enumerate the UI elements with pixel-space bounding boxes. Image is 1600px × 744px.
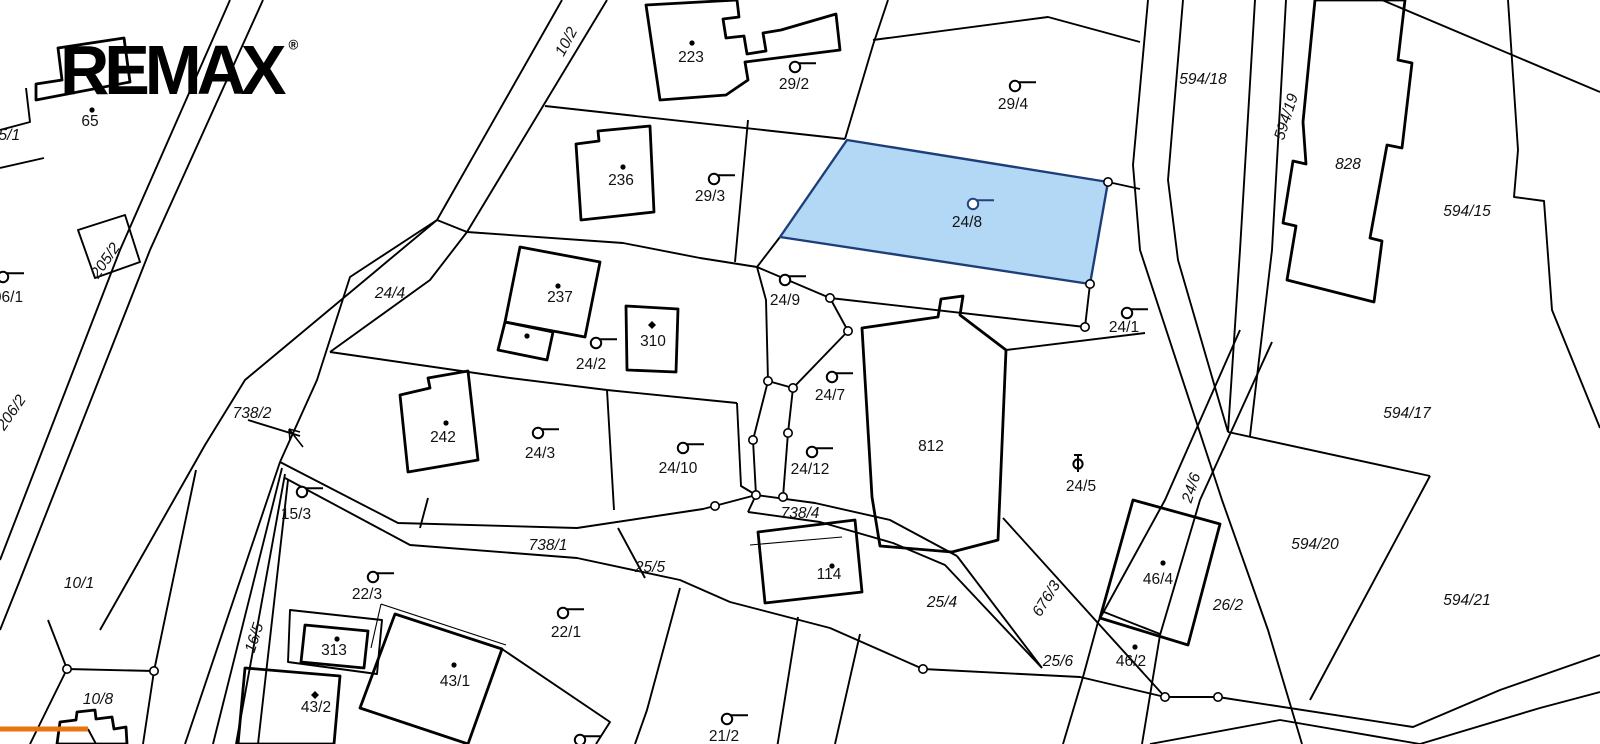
boundary-line [777,617,798,744]
building-outlines [36,0,1412,744]
parcel-label-205-2: 205/2 [87,240,124,283]
boundary-line [467,232,757,267]
parcel-label-206-2: 206/2 [0,392,30,435]
parcel-label-22-1: 22/1 [551,624,581,641]
parcel-label-46-2: 46/2 [1116,653,1146,670]
parcel-label-676-3: 676/3 [1029,578,1064,620]
boundary-line [154,470,196,671]
parcel-label-114: 114 [817,566,842,583]
vertex-point-icon [150,667,158,675]
parcel-label-25-6: 25/6 [1042,653,1074,670]
boundary-line [845,0,888,139]
parcel-label-15-3: 15/3 [281,506,311,523]
parcel-label-29-3: 29/3 [695,188,725,205]
boundary-line [213,468,282,744]
highlighted-parcel[interactable] [780,140,1108,284]
vertex-point-icon [711,502,719,510]
parcel-label-24-7: 24/7 [815,387,845,404]
vertex-point-icon [749,436,757,444]
boundary-line [635,588,680,744]
vertex-point-icon [784,429,792,437]
boundary-line [1310,476,1430,700]
parcel-boundaries [0,0,1600,744]
vertex-point-icon [1086,280,1094,288]
boundary-line [1382,0,1600,92]
parcel-label-24-2: 24/2 [576,356,606,373]
parcel-label-43-2: 43/2 [301,699,331,716]
parcel-label-10-2: 10/2 [552,24,581,59]
building-dot-icon [451,662,456,667]
building-dot-icon [689,40,694,45]
parcel-label-313: 313 [321,642,347,659]
parcel-label-738-1: 738/1 [529,537,568,554]
parcel-label-16-5: 16/5 [242,621,268,655]
boundary-line [280,0,562,462]
parcel-label-22-3: 22/3 [352,586,382,603]
boundary-line [437,220,467,232]
building-diamond-icon [648,321,656,329]
boundary-line [185,462,280,744]
parcel-label-21-2: 21/2 [709,728,739,744]
parcel-label-594-15: 594/15 [1443,203,1491,220]
vertex-point-icon [1214,693,1222,701]
boundary-line [957,556,1042,668]
vertex-point-icon [1081,323,1089,331]
building-outline [1283,0,1412,302]
vertex-point-icon [789,384,797,392]
parcel-labels: 05/16510/222329/229/4594/18594/19828594/… [0,24,1491,744]
vertex-point-icon [1104,178,1112,186]
boundary-line [835,634,860,744]
boundary-line [1142,342,1272,744]
vertex-point-icon [764,377,772,385]
building-outline [646,0,840,100]
parcel-label-237: 237 [547,289,573,306]
vertex-point-icon [1161,693,1169,701]
boundary-line [757,237,780,267]
building-outline [758,520,862,603]
landuse-symbols [0,40,1166,744]
parcel-label-43-1: 43/1 [440,673,470,690]
boundary-line [607,390,614,510]
parcel-label-594-17: 594/17 [1383,405,1432,422]
parcel-label-10-1: 10/1 [64,575,94,592]
boundary-line [1228,432,1430,476]
building-dot-icon [443,420,448,425]
boundary-line [1228,0,1255,432]
parcel-label-24-1: 24/1 [1109,319,1139,336]
parcel-label-24-5: 24/5 [1066,478,1096,495]
parcel-label-594-21: 594/21 [1443,592,1490,609]
parcel-label-24-12: 24/12 [791,461,830,478]
building-dot-icon [555,283,560,288]
boundary-line [236,474,285,744]
parcel-label-26-2: 26/2 [1212,597,1244,614]
boundary-line [873,17,1140,42]
remax-logo: REMAX® [60,36,291,106]
parcel-label-24-4: 24/4 [374,285,406,302]
parcel-label-594-20: 594/20 [1291,536,1339,553]
building-outline [862,296,1006,552]
parcel-label-236: 236 [608,172,634,189]
parcel-label-310: 310 [640,333,666,350]
parcel-label-24-8: 24/8 [952,214,982,231]
boundary-line [30,620,154,744]
boundary-line [502,649,610,744]
highlighted-parcel-24-8[interactable] [780,140,1108,284]
vertex-point-icon [63,665,71,673]
parcel-label-223: 223 [678,49,704,66]
parcel-label-242: 242 [430,429,456,446]
parcel-label-24-10: 24/10 [659,460,698,477]
building-dot-icon [1160,560,1165,565]
parcel-label-65: 65 [81,113,98,130]
parcel-label-25-5: 25/5 [634,559,666,576]
vertex-point-icon [844,327,852,335]
boundary-line [1508,0,1600,428]
parcel-label-828: 828 [1335,156,1361,173]
parcel-label-594-19: 594/19 [1271,91,1302,142]
vertex-point-icon [826,294,834,302]
parcel-label-29-2: 29/2 [779,76,809,93]
parcel-label-10-8: 10/8 [83,691,114,708]
boundary-line [1168,0,1228,432]
parcel-label-738-2: 738/2 [233,405,272,422]
boundary-line [750,537,842,545]
parcel-label-812: 812 [918,438,944,455]
parcel-map[interactable]: 05/16510/222329/229/4594/18594/19828594/… [0,0,1600,744]
boundary-line [545,106,845,139]
cadastral-map-viewport[interactable]: 05/16510/222329/229/4594/18594/19828594/… [0,0,1600,744]
parcel-label-05-1: 05/1 [0,127,20,144]
building-dot-icon [620,164,625,169]
boundary-line [467,0,607,232]
boundary-line [88,729,96,744]
building-outline [400,371,478,472]
vertex-point-icon [779,493,787,501]
boundary-line [1250,0,1286,436]
building-outline [498,322,553,360]
vertex-point-icon [919,665,927,673]
parcel-label-29-4: 29/4 [998,96,1029,113]
registered-trademark-icon: ® [288,37,298,53]
parcel-label-24-9: 24/9 [770,292,800,309]
parcel-label-738-4: 738/4 [781,505,820,522]
remax-logo-text: REMAX [60,32,281,110]
building-dot-icon [524,333,529,338]
parcel-label-25-4: 25/4 [926,594,958,611]
building-diamond-icon [311,691,319,699]
parcel-label-06-1: 06/1 [0,289,23,306]
parcel-label-594-18: 594/18 [1179,71,1227,88]
parcel-label-24-3: 24/3 [525,445,555,462]
vertex-point-icon [752,491,760,499]
boundary-line [735,120,748,262]
parcel-label-46-4: 46/4 [1143,571,1174,588]
building-dot-icon [1132,644,1137,649]
building-dot-icon [334,636,339,641]
boundary-line [1085,284,1090,327]
